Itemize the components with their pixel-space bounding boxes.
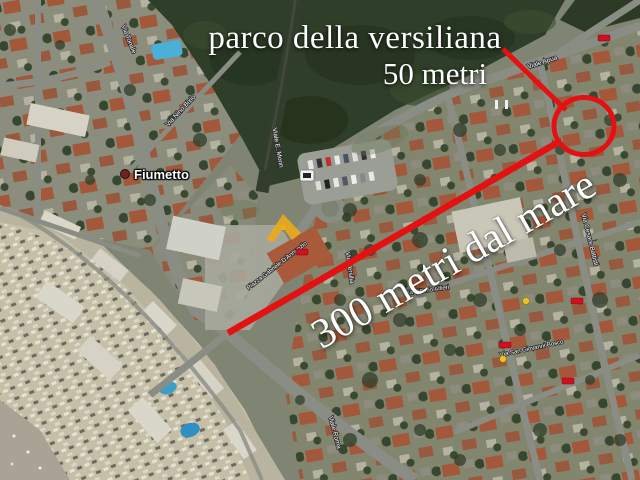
parking-bar-icon [505, 100, 508, 109]
grass-patch [220, 200, 260, 220]
yellow-pin-icon [500, 356, 507, 363]
hotel-marker-icon [598, 35, 610, 41]
annotated-satellite-image: Via Tonale Via Nino Bixio Viale E. Morin… [0, 0, 640, 480]
hotel-marker-icon [562, 378, 574, 384]
hotel-marker-icon [571, 298, 583, 304]
hotel-marker-icon [499, 342, 511, 348]
hotel-marker-icon [296, 249, 308, 255]
parking-bar-icon [495, 100, 498, 109]
parking-sign-icon [300, 170, 314, 181]
satellite-map: Via Tonale Via Nino Bixio Viale E. Morin… [0, 0, 640, 480]
yellow-pin-icon [523, 298, 530, 305]
